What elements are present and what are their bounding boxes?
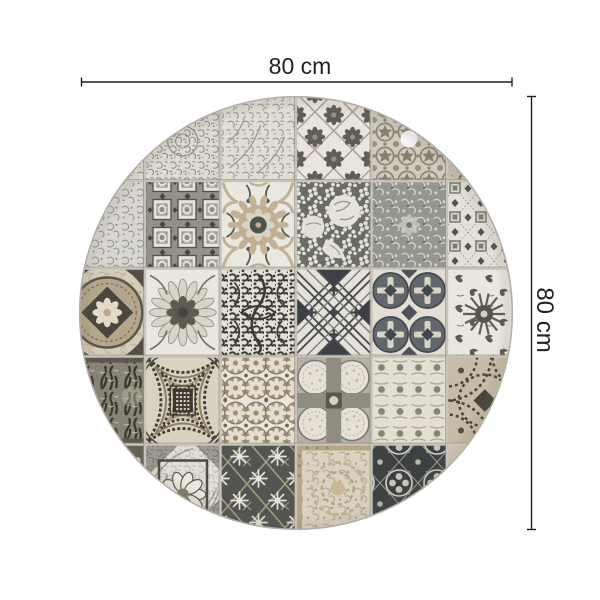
svg-text:80 cm: 80 cm (269, 53, 332, 79)
svg-text:80 cm: 80 cm (531, 287, 558, 352)
